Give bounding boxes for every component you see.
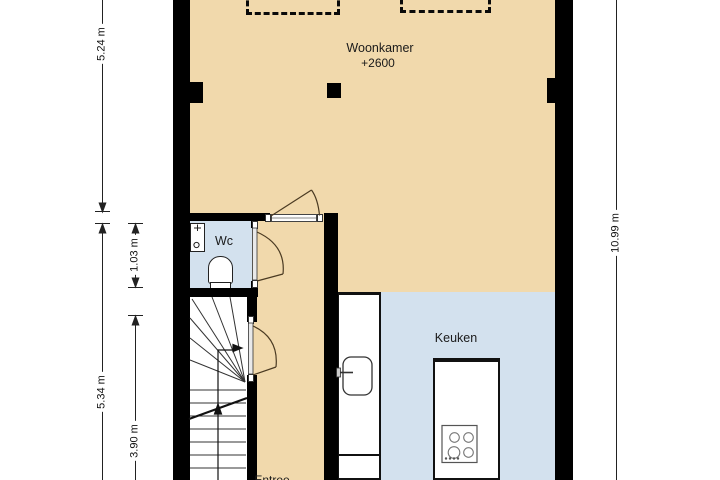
toilet-icon	[208, 256, 233, 284]
wall-stairs-right-bottom	[247, 375, 257, 480]
wc-sink-icon	[190, 223, 205, 252]
pier-right	[547, 78, 555, 103]
wc-door-post-bottom	[252, 280, 258, 288]
door-threshold	[271, 214, 317, 222]
floor-plan-canvas: Woonkamer +2600 Wc Keuken Entree 5.24 m …	[0, 0, 720, 480]
dimension-label-1-03: 1.03 m	[129, 235, 142, 275]
room-height-woonkamer: +2600	[361, 56, 395, 70]
dimension-label-3-90: 3.90 m	[129, 421, 142, 461]
room-floor-hallway	[253, 213, 327, 480]
dimension-label-5-34: 5.34 m	[96, 372, 109, 412]
room-label-keuken: Keuken	[435, 331, 477, 345]
counter-divider	[339, 454, 379, 456]
kitchen-island	[433, 358, 500, 480]
kitchen-counter	[337, 292, 381, 480]
room-label-entree: Entree	[254, 473, 289, 480]
stair-door-post-bottom	[248, 374, 254, 382]
threshold-post-right	[317, 214, 323, 222]
threshold-post-left	[265, 214, 271, 222]
stair-door-post-top	[248, 316, 254, 324]
wall-hall-vertical	[324, 213, 338, 480]
dimension-label-10-99: 10.99 m	[610, 210, 623, 256]
skylight-outline-right	[400, 0, 491, 13]
skylight-outline-left	[246, 0, 340, 15]
wall-right-outer	[555, 0, 573, 480]
dimension-label-5-24: 5.24 m	[96, 24, 109, 64]
wall-wc-bottom	[173, 288, 258, 297]
stairwell-floor	[190, 297, 247, 480]
pier-left	[190, 82, 203, 103]
room-label-wc: Wc	[215, 234, 233, 248]
room-label-woonkamer: Woonkamer	[346, 41, 413, 55]
wall-left-outer	[173, 0, 190, 480]
support-column	[327, 83, 341, 98]
wc-door-post-top	[252, 221, 258, 229]
